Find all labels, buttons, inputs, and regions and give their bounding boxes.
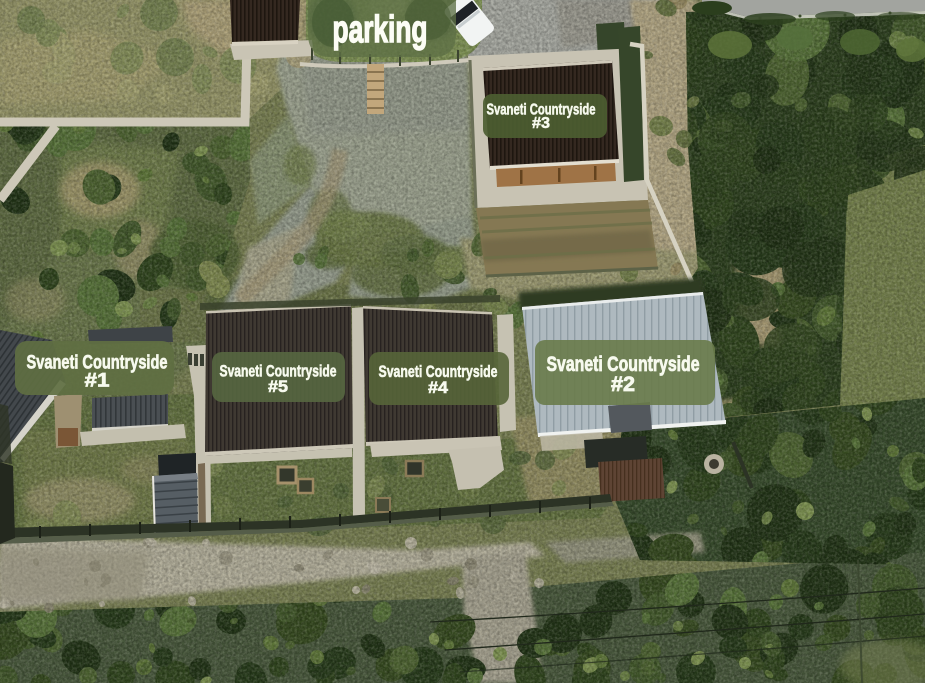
svg-text:#2: #2 — [611, 372, 635, 396]
svg-text:#1: #1 — [85, 371, 111, 392]
svg-text:parking: parking — [333, 9, 428, 51]
svg-text:#3: #3 — [532, 115, 550, 132]
svg-text:#5: #5 — [268, 378, 288, 396]
svg-text:#4: #4 — [428, 378, 449, 397]
